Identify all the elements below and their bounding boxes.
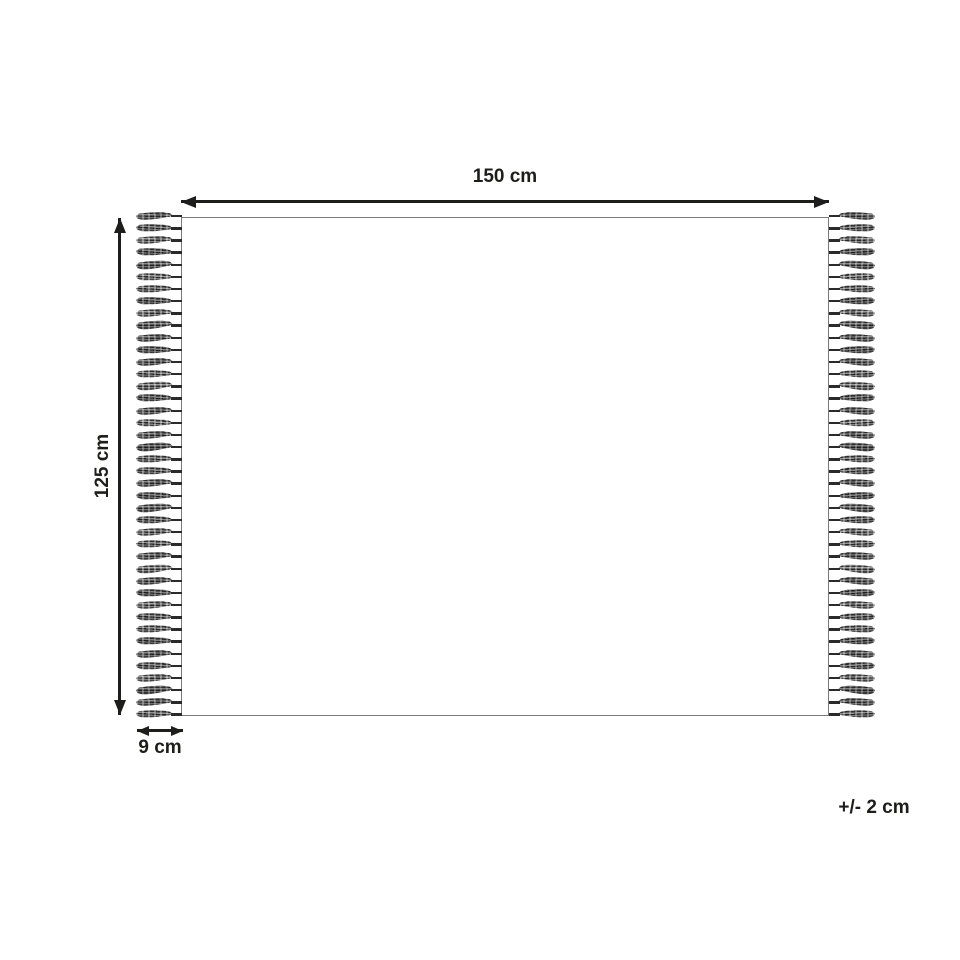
tassel [136, 407, 182, 415]
tassel [136, 601, 182, 609]
tassel [136, 212, 182, 220]
tassel [829, 698, 875, 706]
fringe-width-label: 9 cm [128, 737, 192, 759]
tassel [829, 273, 875, 281]
tassel [136, 637, 182, 645]
tassel [829, 394, 875, 402]
tassel [829, 601, 875, 609]
tassel [829, 540, 875, 548]
tassel [136, 431, 182, 439]
tassel [136, 565, 182, 573]
tassel [829, 334, 875, 342]
tassel [136, 540, 182, 548]
tassel [829, 236, 875, 244]
tassel [136, 662, 182, 670]
tassel [829, 492, 875, 500]
width-label: 150 cm [181, 166, 829, 188]
tassel [829, 224, 875, 232]
tassel [829, 248, 875, 256]
tassel [136, 297, 182, 305]
tassel [136, 528, 182, 536]
tassel [829, 407, 875, 415]
tassel [136, 394, 182, 402]
tassel [136, 577, 182, 585]
tassel [136, 261, 182, 269]
tassel [829, 455, 875, 463]
tassel [829, 504, 875, 512]
tassel [136, 467, 182, 475]
tassel [829, 212, 875, 220]
tassel [136, 674, 182, 682]
tassel [136, 479, 182, 487]
tassel [829, 637, 875, 645]
tassel [829, 309, 875, 317]
height-label: 125 cm [92, 406, 114, 526]
tassel [829, 589, 875, 597]
tassel [829, 285, 875, 293]
tassel [829, 358, 875, 366]
tassel [136, 309, 182, 317]
fringe-right [829, 212, 875, 719]
tassel [136, 492, 182, 500]
rug-outline [181, 217, 829, 716]
width-arrow [181, 200, 829, 203]
tassel [136, 686, 182, 694]
tassel [829, 346, 875, 354]
tassel [829, 443, 875, 451]
tassel [829, 710, 875, 718]
tassel [136, 613, 182, 621]
tassel [136, 321, 182, 329]
tassel [136, 346, 182, 354]
tassel [136, 224, 182, 232]
tassel [829, 467, 875, 475]
tassel [136, 504, 182, 512]
tassel [136, 236, 182, 244]
tassel [829, 613, 875, 621]
tassel [136, 358, 182, 366]
tassel [136, 698, 182, 706]
tassel [136, 285, 182, 293]
fringe-left [136, 212, 182, 719]
tassel [136, 710, 182, 718]
tassel [829, 479, 875, 487]
tassel [136, 443, 182, 451]
tassel [136, 370, 182, 378]
tassel [136, 455, 182, 463]
tassel [829, 577, 875, 585]
tassel [829, 297, 875, 305]
tassel [829, 516, 875, 524]
tassel [136, 589, 182, 597]
tolerance-label: +/- 2 cm [816, 797, 932, 819]
tassel [829, 261, 875, 269]
tassel [136, 248, 182, 256]
tassel [829, 419, 875, 427]
tassel [136, 552, 182, 560]
tassel [829, 321, 875, 329]
tassel [136, 382, 182, 390]
tassel [829, 686, 875, 694]
tassel [829, 382, 875, 390]
fringe-width-arrow [137, 729, 183, 732]
tassel [829, 662, 875, 670]
tassel [829, 552, 875, 560]
tassel [829, 650, 875, 658]
tassel [829, 431, 875, 439]
tassel [829, 674, 875, 682]
tassel [136, 625, 182, 633]
tassel [829, 625, 875, 633]
tassel [136, 650, 182, 658]
height-arrow [118, 218, 121, 715]
tassel [136, 419, 182, 427]
tassel [136, 334, 182, 342]
dimension-diagram: 150 cm 125 cm 9 cm +/- 2 cm [0, 0, 960, 960]
tassel [829, 528, 875, 536]
tassel [136, 273, 182, 281]
tassel [829, 370, 875, 378]
tassel [136, 516, 182, 524]
tassel [829, 565, 875, 573]
